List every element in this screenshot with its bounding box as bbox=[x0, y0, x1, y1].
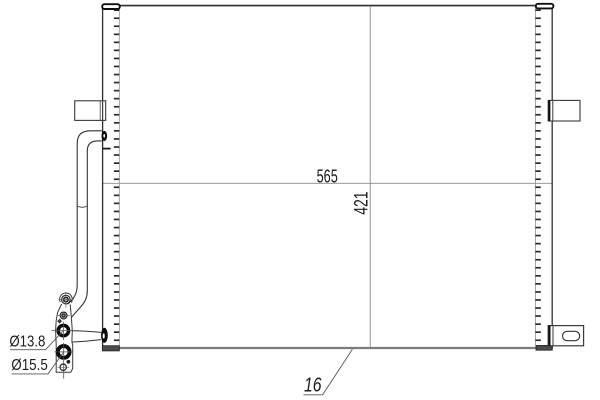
svg-text:565: 565 bbox=[317, 165, 338, 186]
svg-text:Ø13.8: Ø13.8 bbox=[9, 333, 45, 350]
svg-text:421: 421 bbox=[352, 191, 373, 214]
svg-text:16: 16 bbox=[304, 375, 322, 397]
svg-text:Ø15.5: Ø15.5 bbox=[11, 357, 48, 374]
